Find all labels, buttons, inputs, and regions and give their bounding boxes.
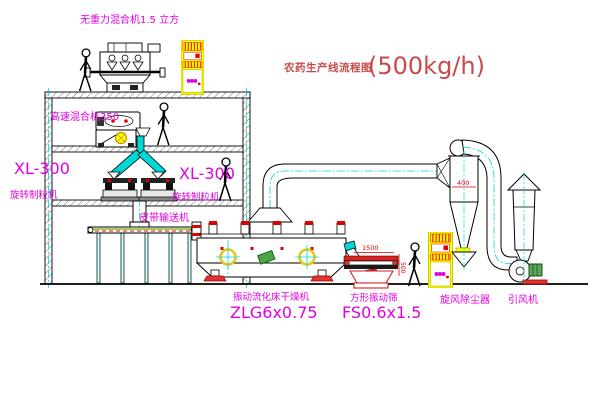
exhaust-duct — [263, 158, 450, 208]
fluid-bed-dryer — [192, 208, 346, 281]
label-gravity-mixer: 无重力混合机1.5 立方 — [80, 13, 179, 26]
label-granulator-right-name: 旋转制粒机 — [172, 191, 220, 203]
control-cabinet-icon — [429, 232, 453, 288]
granulator-left — [101, 178, 139, 201]
label-granulator-left-model: XL-300 — [14, 159, 70, 178]
roof-slab — [45, 92, 250, 98]
page-title: 农药生产线流程图 — [283, 61, 372, 74]
induced-draft-fan — [508, 172, 547, 284]
gravity-free-mixer — [85, 43, 165, 92]
pesticide-line-diagram: 农药生产线流程图 (500kg/h) 无重力混合机1.5 立方 高速混合机350… — [0, 0, 600, 403]
label-dryer-name: 振动流化床干燥机 — [233, 291, 310, 303]
label-granulator-left-name: 旋转制粒机 — [10, 189, 58, 201]
label-cyclone: 旋风除尘器 — [440, 293, 490, 306]
worker-figure-icon — [158, 103, 169, 145]
flow-diagram-canvas: 农药生产线流程图 (500kg/h) 无重力混合机1.5 立方 高速混合机350… — [0, 0, 600, 403]
label-granulator-right-model: XL-300 — [179, 164, 235, 183]
worker-figure-icon — [409, 243, 421, 286]
dimension-sieve-outlet: 500 — [399, 262, 406, 274]
dimension-cyclone-body: 400 — [457, 179, 469, 187]
label-high-speed-mixer: 高速混合机350 — [50, 110, 119, 123]
control-cabinet-icon — [181, 41, 204, 95]
label-belt-conveyor: 皮带输送机 — [139, 211, 189, 224]
dimension-sieve-length: 1500 — [362, 244, 379, 252]
belt-conveyor — [88, 227, 196, 283]
title-capacity: (500kg/h) — [368, 52, 485, 80]
floor2-slab — [52, 146, 243, 152]
label-sieve-model: FS0.6x1.5 — [342, 303, 421, 322]
label-dryer-model: ZLG6x0.75 — [230, 303, 318, 322]
cyclone-separator — [448, 140, 518, 272]
label-fan: 引风机 — [508, 293, 538, 306]
